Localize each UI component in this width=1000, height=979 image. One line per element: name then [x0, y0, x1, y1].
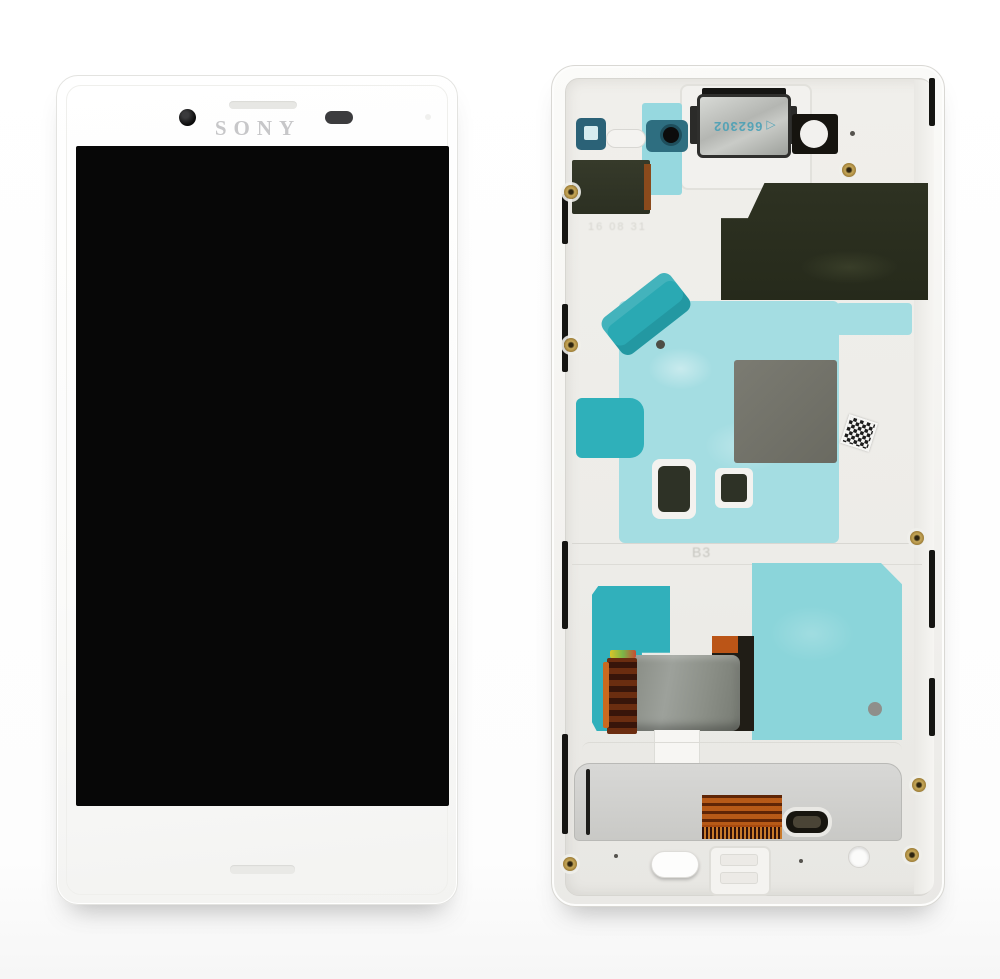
bottom-mic-slit	[230, 865, 295, 874]
front-camera-lens-icon	[660, 124, 682, 146]
gray-shield-square	[734, 360, 837, 463]
frame-edge-mark	[929, 78, 935, 126]
flex-connector-edge	[603, 662, 609, 728]
proximity-sensor-window	[325, 111, 353, 124]
adhesive-pull-tab-left	[576, 398, 644, 458]
alignment-dot	[799, 859, 803, 863]
flex-shield-top-left	[572, 160, 650, 214]
flex-contact-fingers	[702, 827, 782, 839]
digitizer-flex-connector	[702, 795, 782, 839]
screw	[563, 857, 577, 871]
screw	[564, 185, 578, 199]
flex-connector	[607, 658, 637, 734]
bottom-button-cap	[651, 851, 699, 878]
flex-contact-strip	[610, 650, 636, 658]
component-window-dark	[658, 466, 690, 512]
direction-arrow-icon: ◁	[765, 119, 775, 133]
alignment-dot	[850, 131, 855, 136]
screw	[912, 778, 926, 792]
notification-led-hole	[425, 114, 431, 120]
alignment-dot	[614, 854, 618, 858]
frame-edge-mark	[562, 541, 568, 629]
frame-seam	[572, 543, 922, 565]
adhesive-sheet-extension	[836, 303, 912, 335]
sony-logo: SONY	[57, 116, 459, 141]
screw	[842, 163, 856, 177]
frame-seam	[582, 742, 902, 762]
bottom-screw-hole	[848, 846, 870, 868]
display-glass	[76, 146, 449, 806]
adhesive-patch-hole	[868, 702, 882, 716]
molded-slot	[720, 854, 758, 866]
plate-edge-mark	[586, 769, 590, 835]
sheet-hole-dot	[656, 340, 665, 349]
lcd-flex-cable	[620, 655, 740, 731]
flex-copper-edge	[644, 164, 651, 210]
molded-slot	[720, 872, 758, 884]
frame-edge-mark	[562, 194, 568, 244]
earpiece-mesh-back	[606, 129, 646, 148]
product-photo: SONY ◁ 662302	[0, 0, 1000, 979]
component-window-dark	[721, 474, 747, 502]
frame-edge-mark	[929, 678, 935, 736]
front-display-assembly: SONY	[56, 75, 458, 905]
earpiece-slit	[229, 101, 297, 109]
screw	[564, 338, 578, 352]
screw	[905, 848, 919, 862]
camera-opening-hole	[800, 120, 828, 148]
sensor-window-glass	[584, 126, 598, 140]
speaker-marking-text: 662302	[713, 119, 762, 134]
frame-edge-mark	[562, 734, 568, 834]
frame-edge-mark	[929, 550, 935, 628]
flex-bands	[702, 795, 782, 825]
screw	[910, 531, 924, 545]
flex-copper-tab	[712, 636, 738, 653]
loudspeaker-slot-core	[793, 816, 821, 828]
molded-date-marking: 16 08 31	[588, 221, 668, 233]
speaker-marking: ◁ 662302	[713, 119, 776, 134]
earpiece-speaker-module: ◁ 662302	[697, 94, 791, 158]
back-frame-assembly: ◁ 662302 16 08 31 B3	[551, 65, 945, 907]
